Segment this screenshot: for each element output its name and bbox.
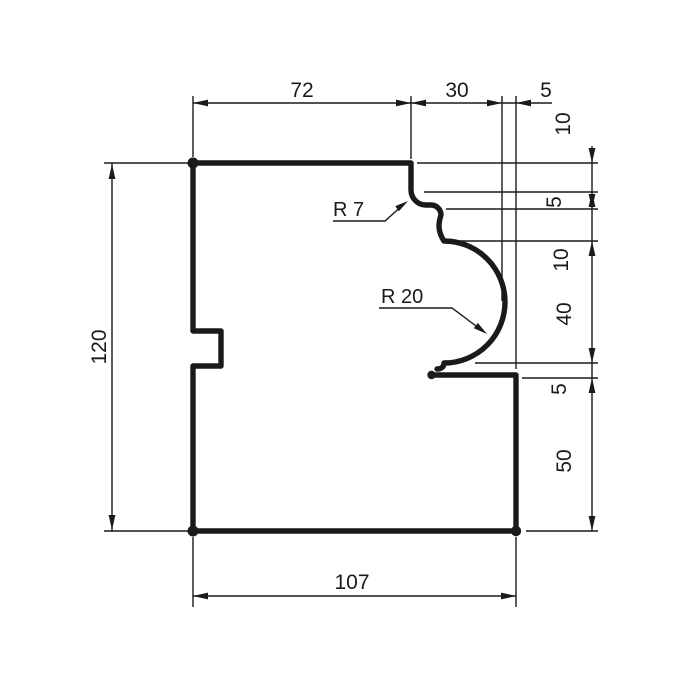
ledge-end-cap bbox=[427, 371, 435, 379]
leader-lines bbox=[333, 203, 484, 332]
dim-text-10-upper: 10 bbox=[552, 112, 575, 135]
arrow-down-y120 bbox=[589, 516, 596, 531]
arrow-up-y70 bbox=[589, 378, 596, 393]
dim-text-30: 30 bbox=[445, 79, 468, 102]
dim-text-50: 50 bbox=[553, 449, 576, 472]
arrow-left-x107 bbox=[516, 100, 531, 107]
dim-text-5-lower: 5 bbox=[548, 383, 571, 395]
dim-text-40: 40 bbox=[553, 302, 576, 325]
arrow-right-x72 bbox=[396, 100, 411, 107]
arrow-up-left-dim bbox=[109, 164, 116, 179]
corner-node-bottom-right bbox=[511, 526, 521, 536]
drawing-page: 72 30 5 107 120 10 5 10 40 5 50 R 7 R 20 bbox=[0, 0, 686, 686]
arrow-down-y65 bbox=[589, 348, 596, 363]
dimension-lines bbox=[112, 103, 592, 596]
arrow-left-x72 bbox=[411, 100, 426, 107]
dim-text-5-upper: 5 bbox=[543, 196, 566, 208]
arrow-down-y0 bbox=[589, 148, 596, 163]
dim-text-107: 107 bbox=[334, 571, 369, 594]
technical-drawing-canvas: 72 30 5 107 120 10 5 10 40 5 50 R 7 R 20 bbox=[0, 0, 686, 686]
dimension-texts: 72 30 5 107 120 10 5 10 40 5 50 R 7 R 20 bbox=[88, 79, 576, 594]
dim-text-5-top: 5 bbox=[540, 79, 552, 102]
corner-node-bottom-left bbox=[188, 526, 199, 537]
radius-text-r20: R 20 bbox=[381, 286, 423, 308]
dim-text-10-lower: 10 bbox=[550, 248, 573, 271]
leader-line-r20 bbox=[379, 308, 484, 332]
arrow-right-x102 bbox=[487, 100, 502, 107]
arrow-right-bottom-dim bbox=[501, 593, 516, 600]
radius-text-r7: R 7 bbox=[333, 199, 364, 221]
arrow-up-y25 bbox=[589, 241, 596, 256]
arrow-down-left-dim bbox=[109, 515, 116, 530]
arrowheads bbox=[109, 100, 596, 600]
corner-node-top-left bbox=[188, 158, 199, 169]
arrow-left-bottom-dim bbox=[193, 593, 208, 600]
arrow-left-x0 bbox=[193, 100, 208, 107]
dim-text-120: 120 bbox=[88, 329, 111, 364]
dim-text-72: 72 bbox=[290, 79, 313, 102]
